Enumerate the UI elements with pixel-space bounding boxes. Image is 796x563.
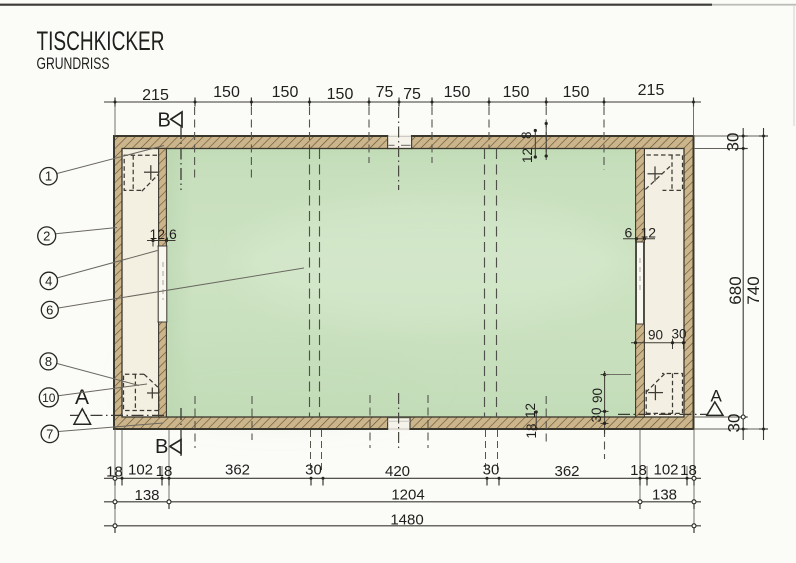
svg-text:1204: 1204 [391,487,424,504]
svg-text:6: 6 [625,225,633,241]
svg-text:680: 680 [726,276,745,304]
svg-text:12: 12 [520,148,535,163]
svg-text:12: 12 [641,225,657,241]
svg-text:150: 150 [213,84,240,101]
svg-text:18: 18 [630,462,647,479]
svg-text:10: 10 [42,391,56,405]
svg-text:1480: 1480 [390,512,423,529]
svg-text:102: 102 [653,462,678,479]
svg-text:18: 18 [156,463,173,480]
svg-text:30: 30 [305,462,322,479]
svg-text:A: A [75,386,89,409]
svg-text:GRUNDRISS: GRUNDRISS [37,54,110,73]
svg-text:138: 138 [652,487,677,504]
svg-text:30: 30 [725,414,744,433]
svg-text:150: 150 [327,86,354,103]
svg-text:1: 1 [45,169,52,184]
svg-text:6: 6 [46,302,53,317]
svg-text:7: 7 [46,426,53,441]
svg-text:150: 150 [444,84,471,101]
svg-text:8: 8 [45,354,52,369]
svg-text:A: A [711,387,723,406]
svg-text:30: 30 [589,407,604,422]
svg-text:215: 215 [142,87,169,104]
svg-text:18: 18 [106,464,123,481]
svg-text:TISCHKICKER: TISCHKICKER [37,26,165,56]
svg-text:420: 420 [385,463,410,480]
svg-text:4: 4 [45,273,52,288]
svg-text:18: 18 [524,423,539,438]
svg-text:2: 2 [43,228,50,243]
svg-text:75: 75 [376,84,394,101]
svg-text:150: 150 [563,84,590,101]
svg-text:90: 90 [590,388,605,403]
svg-text:362: 362 [225,462,250,479]
svg-text:30: 30 [483,462,500,479]
svg-text:102: 102 [128,462,153,479]
svg-text:30: 30 [672,327,687,342]
svg-text:150: 150 [272,84,299,101]
svg-text:18: 18 [680,462,697,479]
svg-text:B: B [155,436,168,458]
svg-text:740: 740 [744,276,763,304]
svg-text:B: B [158,110,171,132]
svg-text:8: 8 [519,131,534,139]
svg-text:30: 30 [724,133,743,152]
svg-text:362: 362 [554,463,579,480]
svg-text:90: 90 [648,328,663,343]
svg-text:138: 138 [134,487,159,504]
svg-text:215: 215 [638,82,665,99]
svg-text:150: 150 [503,84,530,101]
svg-text:75: 75 [403,86,421,103]
